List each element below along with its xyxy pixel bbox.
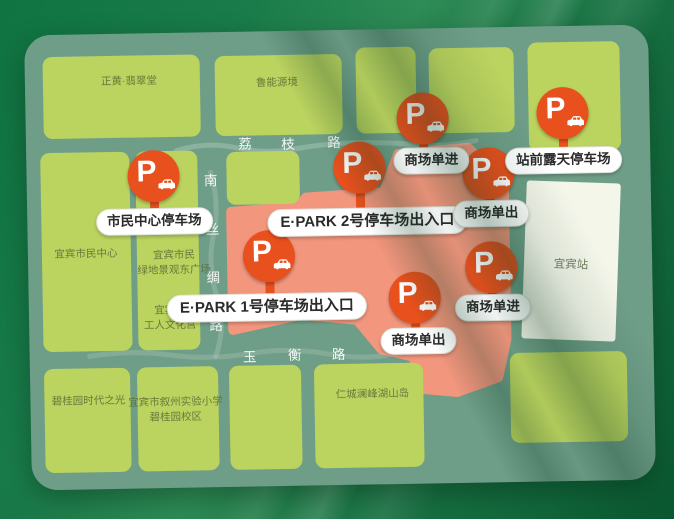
parking-p: P <box>405 99 426 129</box>
road-label-nansichou: 绸 <box>206 266 220 286</box>
city-block <box>226 151 300 205</box>
car-icon <box>419 299 437 311</box>
car-icon <box>427 120 445 132</box>
city-block <box>510 351 629 443</box>
pin-label-mall-exit-south[interactable]: 商场单出 <box>380 327 456 355</box>
pin-label-station-front[interactable]: 站前露天停车场 <box>505 146 622 175</box>
block-label-line: 宜宾市民 <box>153 249 195 262</box>
road-label-yuheng: 衡 <box>288 344 302 364</box>
block-label: 宜宾市叙州实验小学 碧桂园校区 <box>128 394 223 425</box>
road-label-lizhi: 路 <box>327 131 341 151</box>
block-label-line: 宜宾市叙州实验小学 <box>128 395 223 409</box>
block-label: 宜宾市民中心 <box>54 247 117 263</box>
parking-p: P <box>252 237 273 267</box>
block-label: 碧桂园时代之光 <box>52 393 126 409</box>
car-icon <box>567 115 585 127</box>
city-block: 宜宾市叙州实验小学 碧桂园校区 <box>137 366 220 471</box>
pin-label-mall-exit-east[interactable]: 商场单出 <box>453 199 529 227</box>
parking-p: P <box>342 149 363 179</box>
city-block: 宜宾市民中心 <box>40 152 132 353</box>
road-label-nansichou: 南 <box>204 169 218 189</box>
city-block: 仁城澜峰湖山岛 <box>314 363 425 469</box>
block-label: 鲁能源境 <box>256 75 298 90</box>
pin-label-mall-entry-north[interactable]: 商场单进 <box>393 146 469 174</box>
road-label-lizhi: 枝 <box>281 133 295 153</box>
road-label-yuheng: 玉 <box>243 345 257 365</box>
city-block: 碧桂园时代之光 <box>44 368 132 473</box>
background: 正黄·翡翠堂 鲁能源境 宜宾市民中心 宜宾市民 绿地景观东广场 宜宾市 工人文化… <box>0 0 674 519</box>
block-label: 宜宾市民 绿地景观东广场 <box>137 248 211 279</box>
block-label: 正黄·翡翠堂 <box>101 74 157 90</box>
car-icon <box>493 175 511 187</box>
map-card: 正黄·翡翠堂 鲁能源境 宜宾市民中心 宜宾市民 绿地景观东广场 宜宾市 工人文化… <box>24 25 656 491</box>
road-label-lizhi: 荔 <box>238 133 252 153</box>
block-label-line: 绿地景观东广场 <box>137 263 211 276</box>
station-block: 宜宾站 <box>521 180 620 341</box>
city-block: 鲁能源境 <box>214 54 342 136</box>
car-icon <box>495 269 513 281</box>
pin-label-epark-2[interactable]: E·PARK 2号停车场出入口 <box>267 206 467 237</box>
road-label-yuheng: 路 <box>332 343 346 363</box>
pin-label-epark-1[interactable]: E·PARK 1号停车场出入口 <box>167 292 367 323</box>
city-block <box>229 365 303 470</box>
parking-p: P <box>397 279 418 309</box>
block-label: 仁城澜峰湖山岛 <box>336 386 410 402</box>
parking-p: P <box>136 157 157 187</box>
parking-p: P <box>471 154 492 184</box>
block-label-line: 碧桂园校区 <box>149 410 202 423</box>
parking-p: P <box>545 94 566 124</box>
car-icon <box>158 178 176 190</box>
city-block: 正黄·翡翠堂 <box>42 54 200 139</box>
parking-p: P <box>474 248 495 278</box>
car-icon <box>363 169 381 181</box>
station-label: 宜宾站 <box>553 255 588 272</box>
pin-label-mall-entry-east[interactable]: 商场单进 <box>455 293 531 321</box>
pin-label-civic-center[interactable]: 市民中心停车场 <box>96 207 213 236</box>
car-icon <box>273 258 291 270</box>
